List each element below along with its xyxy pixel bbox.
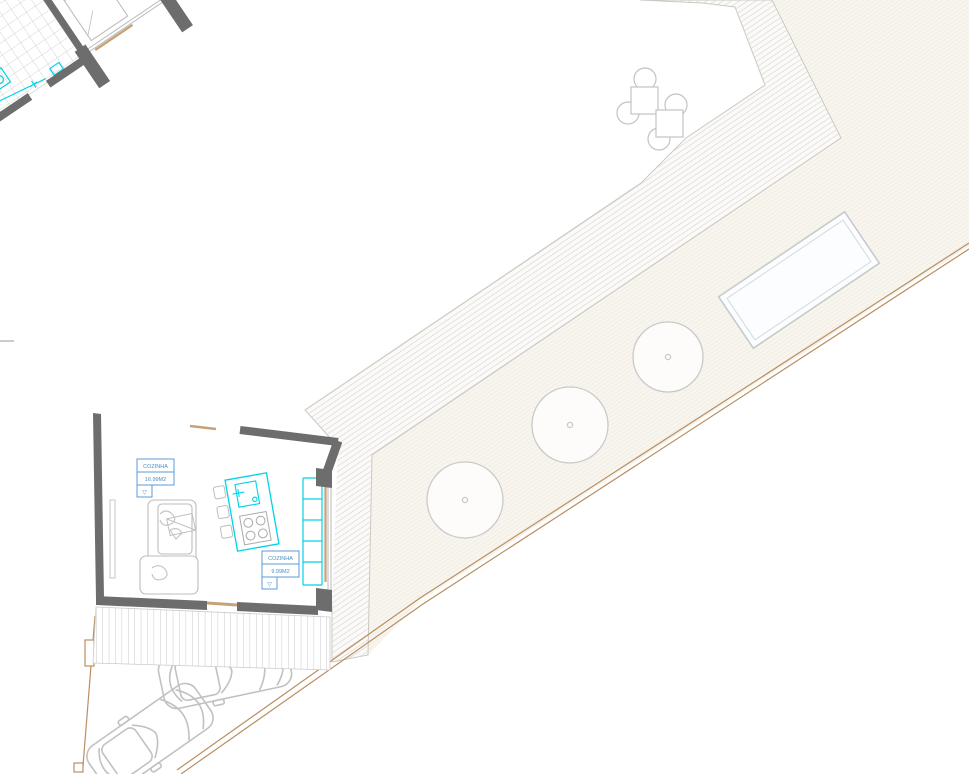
boundary-post xyxy=(74,763,83,772)
floor-plan-drawing: COZINHA 16.99M2 ▽ COZINHA 9.99M2 ▽ xyxy=(0,0,969,774)
tree xyxy=(532,387,608,463)
floor-plan-canvas: COZINHA 16.99M2 ▽ COZINHA 9.99M2 ▽ xyxy=(0,0,969,774)
room-area-label: 9.99M2 xyxy=(271,569,289,575)
tree xyxy=(633,322,703,392)
se-pillar xyxy=(316,588,332,612)
walkway xyxy=(93,607,330,670)
room-name-label: COZINHA xyxy=(143,464,168,470)
room-area-label: 16.99M2 xyxy=(145,477,166,483)
room-symbol: ▽ xyxy=(142,490,147,496)
south-door-threshold xyxy=(207,603,237,605)
room-symbol: ▽ xyxy=(267,582,272,588)
room-name-label: COZINHA xyxy=(268,556,293,562)
living-block xyxy=(93,410,338,615)
tree xyxy=(427,462,503,538)
